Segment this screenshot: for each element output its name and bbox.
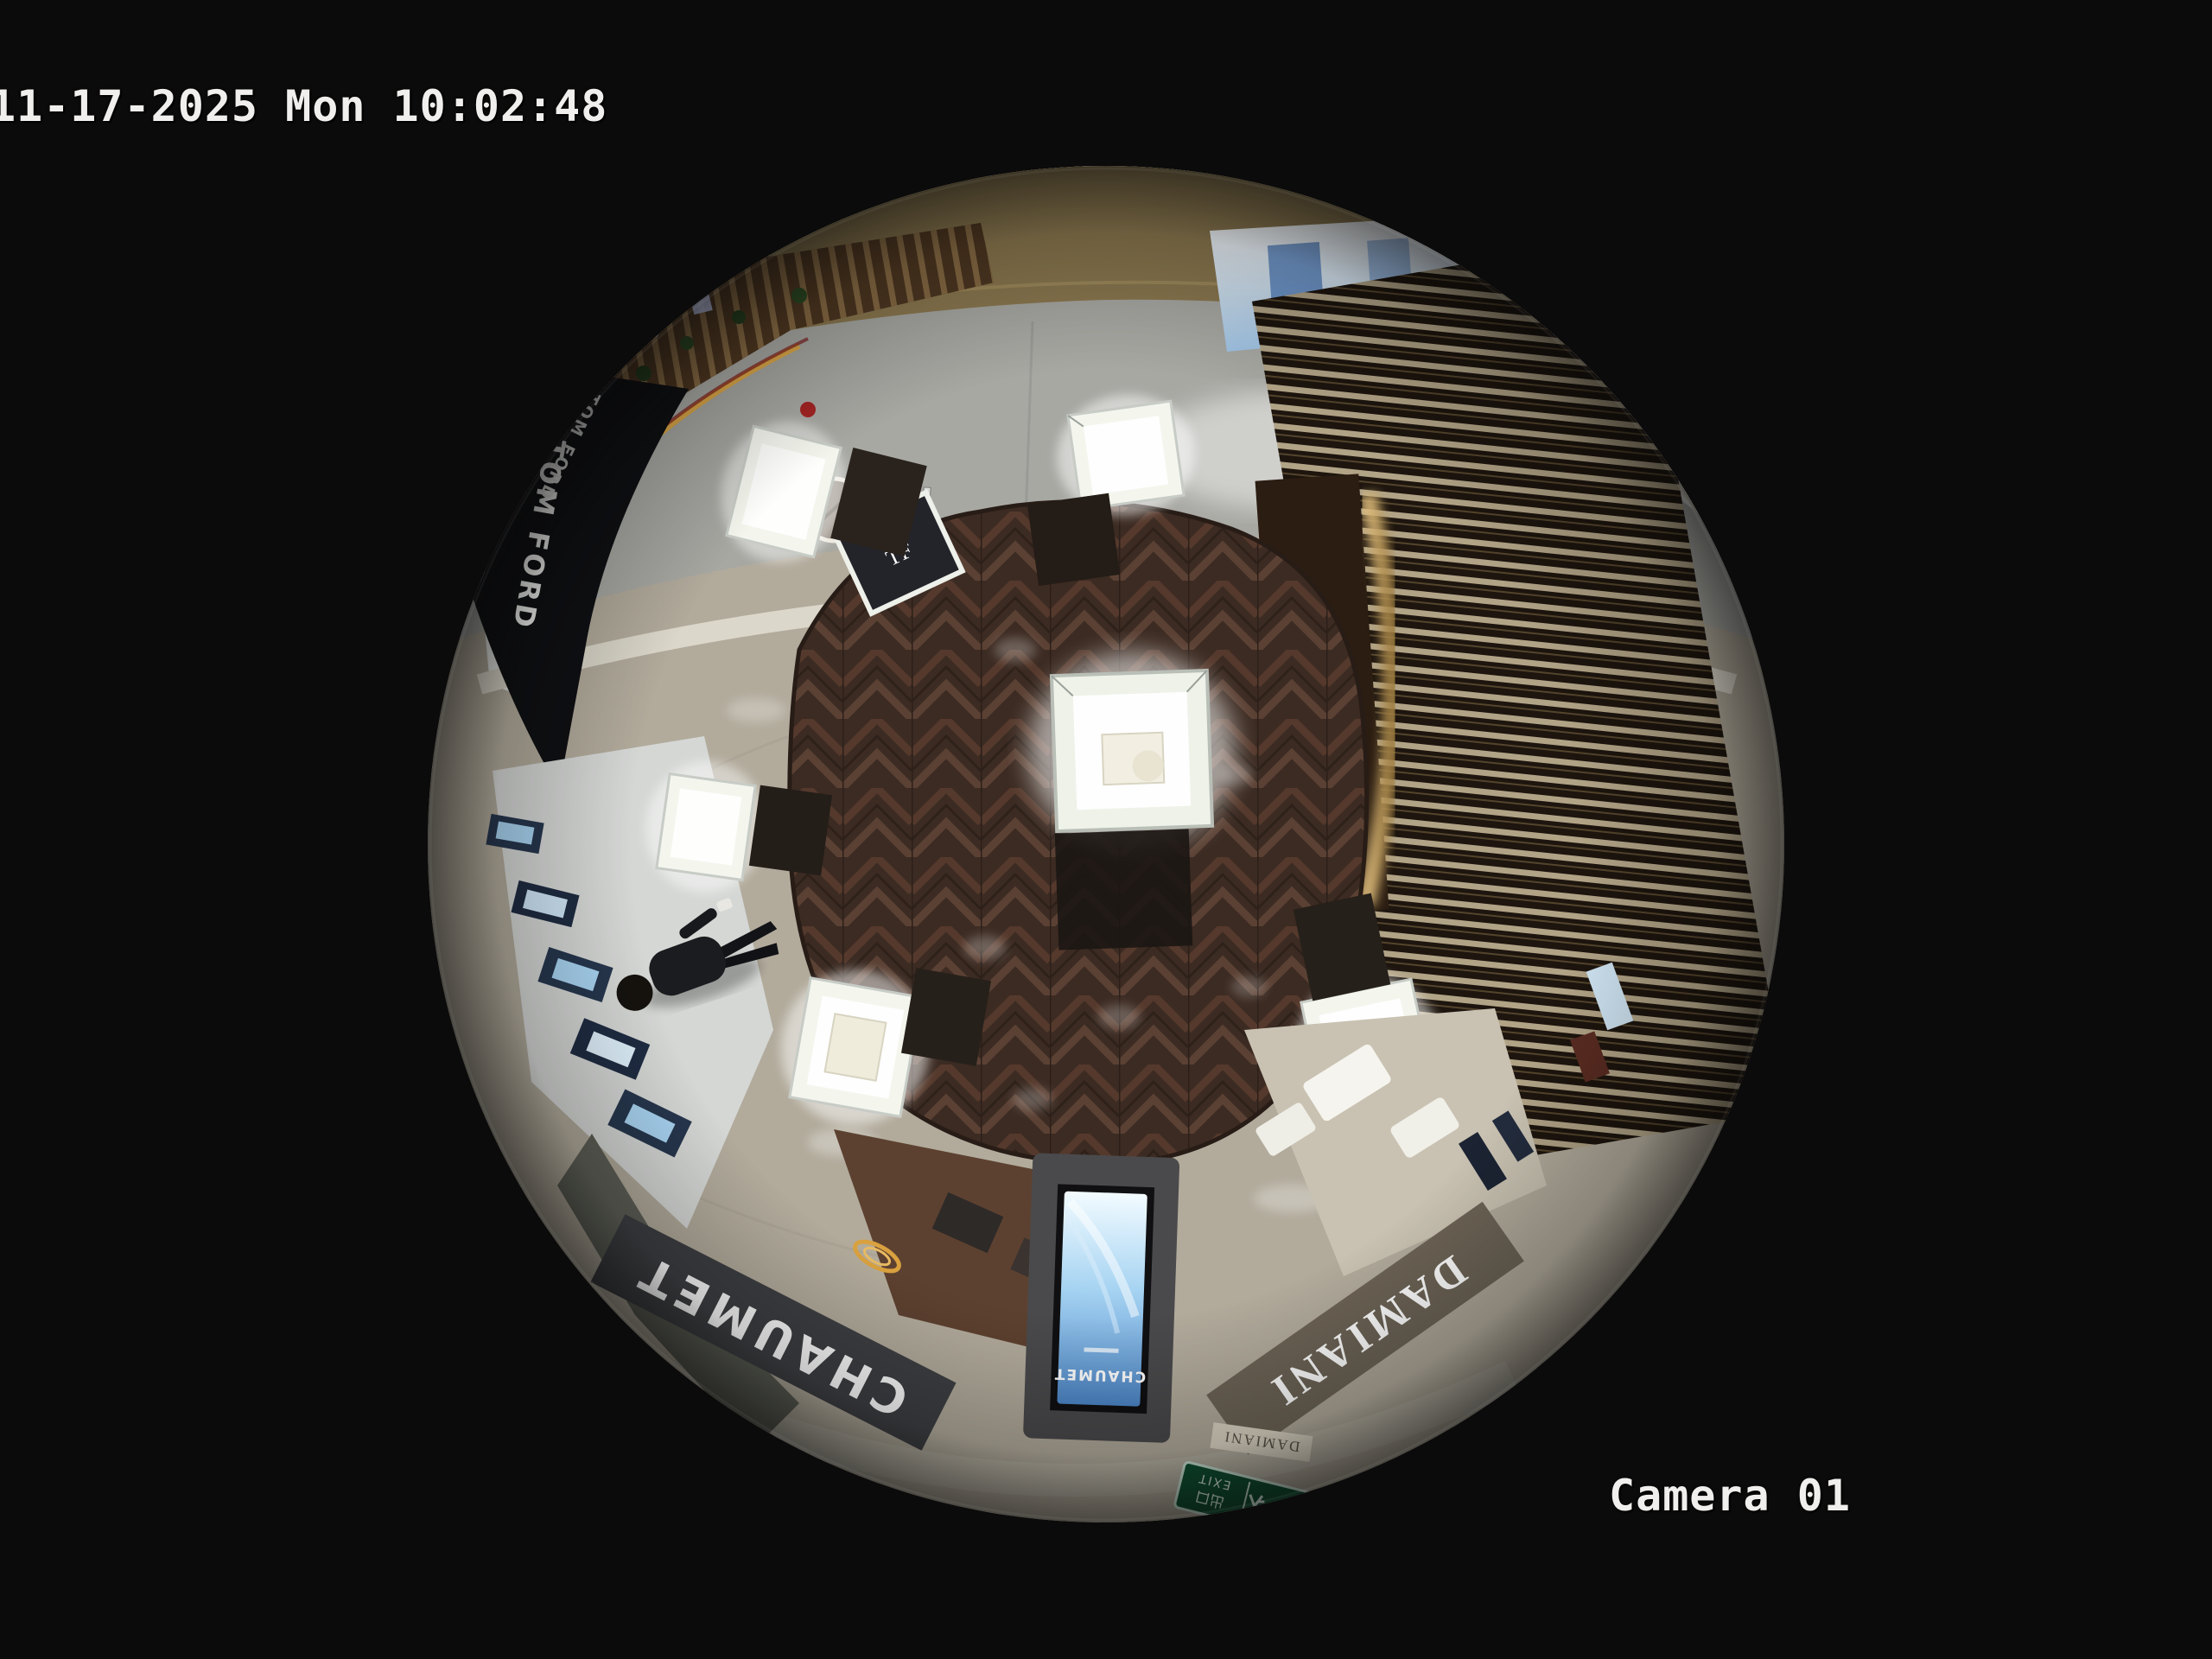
exit-runner-icon bbox=[1248, 1506, 1258, 1516]
timestamp-overlay: 11-17-2025 Mon 10:02:48 bbox=[0, 81, 607, 131]
fisheye-view: TORY BURCH bbox=[428, 166, 1784, 1522]
cctv-frame: TORY BURCH bbox=[0, 0, 2212, 1659]
vignette bbox=[428, 166, 1784, 1522]
camera-label-overlay: Camera 01 bbox=[1609, 1471, 1851, 1521]
store-scene: TORY BURCH bbox=[428, 166, 1784, 1522]
